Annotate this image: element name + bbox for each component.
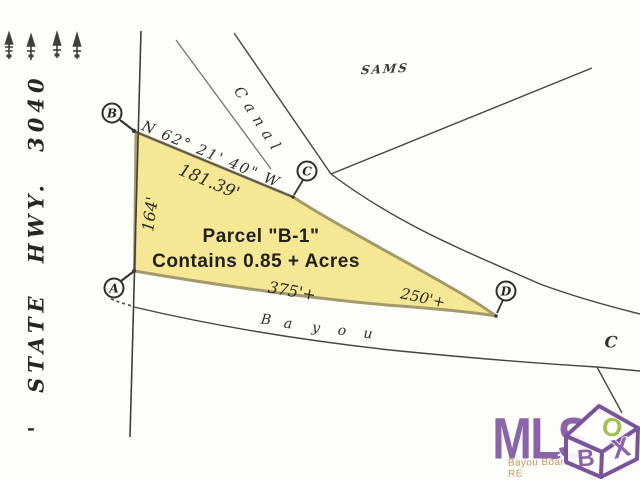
corner-marker-b-label: B [107, 106, 117, 120]
bayou-c-label: C [604, 332, 618, 352]
bayou-letter-b: B [260, 311, 272, 328]
bayou-bank-dashes [111, 299, 132, 306]
northeast-line [331, 68, 592, 174]
bayou-letter-o: o [337, 323, 347, 340]
corner-dot-d [494, 314, 498, 318]
marker-icon-1 [5, 33, 13, 59]
corner-marker-d-label: D [501, 284, 511, 298]
corner-dot-b [132, 129, 136, 133]
corner-marker-d: D [496, 281, 517, 302]
sams-label: SAMS [360, 61, 410, 78]
bayou-fork-line [597, 367, 622, 413]
bayou-letter-u: u [363, 326, 373, 343]
survey-marker-icons [5, 33, 81, 60]
leader-a [121, 272, 133, 281]
survey-plat: ' STATE HWY. 3040 Canal SAMS N 62° 21' 4… [0, 0, 640, 480]
leader-c [294, 180, 303, 195]
corner-marker-b: B [102, 103, 123, 124]
corner-marker-a: A [104, 278, 125, 299]
marker-icon-3 [53, 33, 61, 58]
leader-b [120, 120, 133, 130]
corner-dot-c [291, 195, 295, 199]
corner-dot-a [132, 269, 136, 273]
corner-marker-a-label: A [109, 281, 118, 295]
state-hwy-label: ' STATE HWY. 3040 [24, 73, 49, 432]
marker-icon-4 [73, 34, 81, 59]
parcel-title: Parcel "B-1" [203, 226, 320, 248]
parcel-area: Contains 0.85 + Acres [152, 251, 360, 273]
bayou-bank-line [134, 307, 640, 371]
marker-icon-2 [27, 35, 35, 60]
corner-marker-c-label: C [302, 164, 312, 178]
leader-d [497, 300, 503, 313]
corner-marker-c: C [297, 161, 318, 182]
mls-watermark-subtext: Bayou Board of RE [508, 456, 596, 480]
